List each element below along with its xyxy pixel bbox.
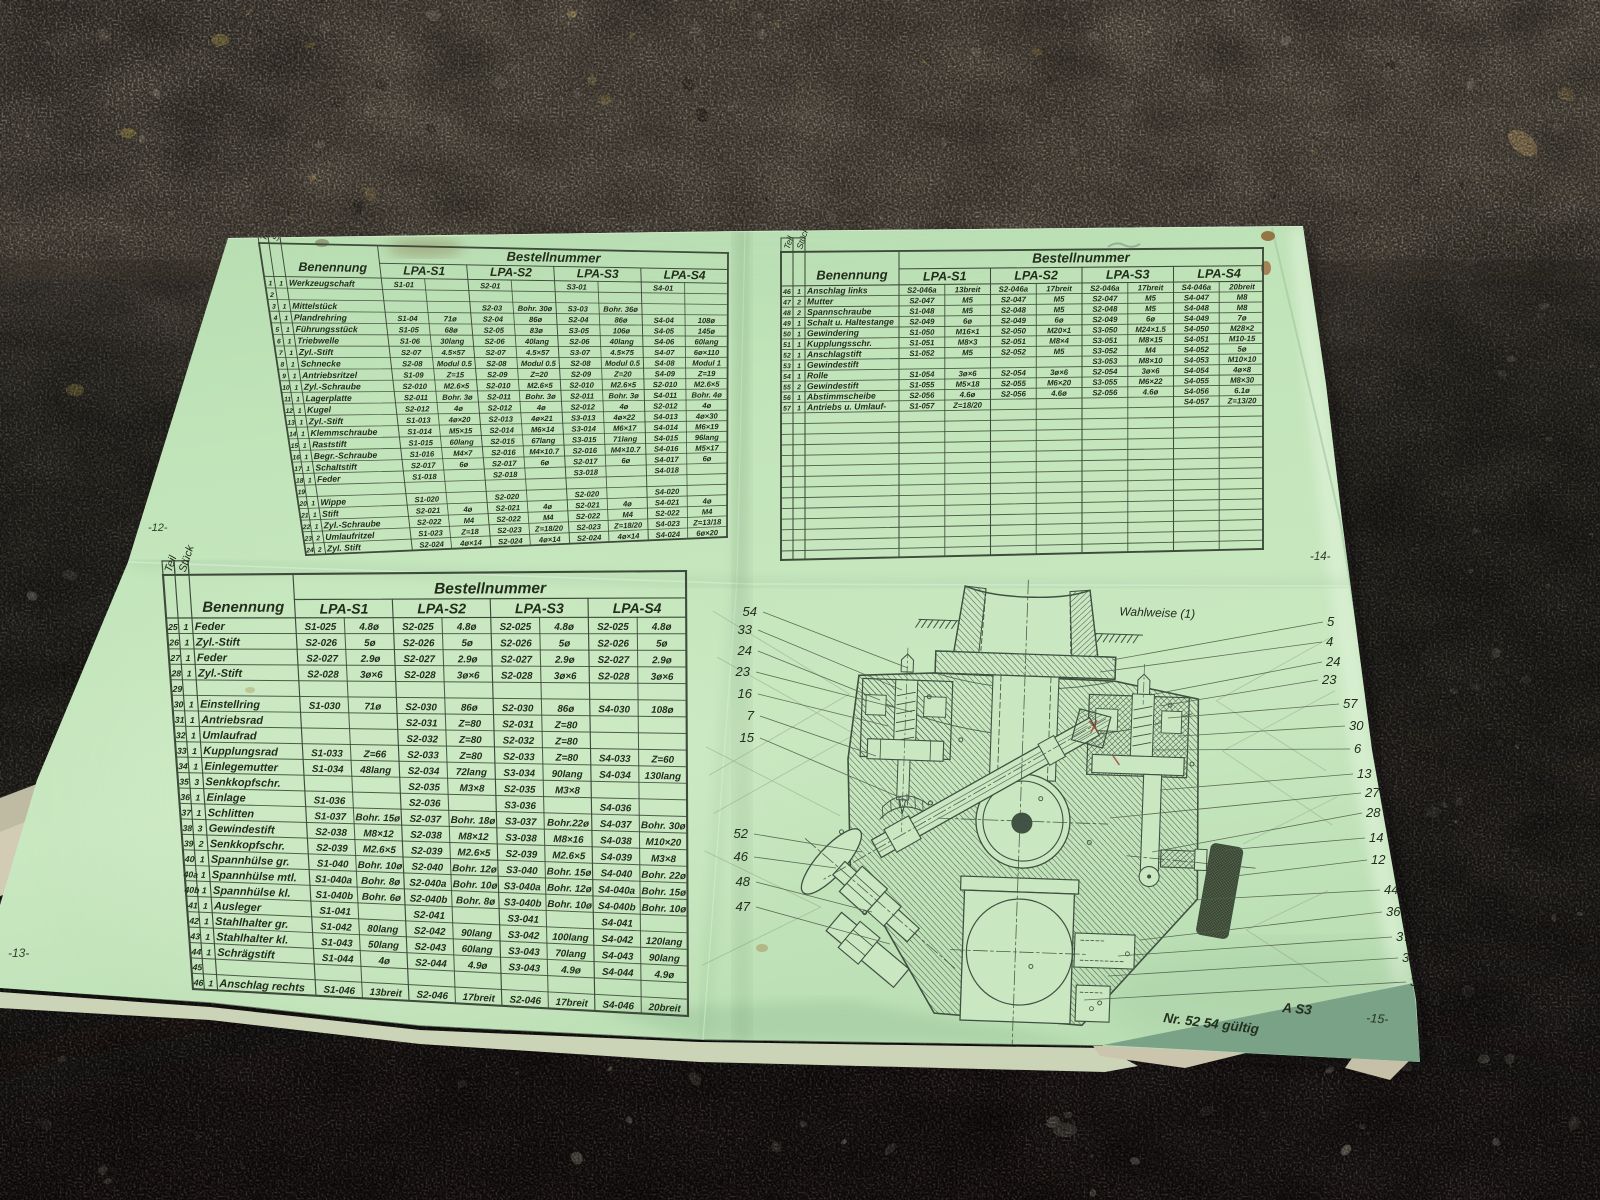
svg-text:27: 27 bbox=[1364, 785, 1380, 800]
svg-text:54: 54 bbox=[743, 604, 757, 619]
svg-text:S4-05: S4-05 bbox=[654, 327, 675, 336]
svg-text:LPA-S1: LPA-S1 bbox=[923, 269, 967, 283]
svg-text:6ø: 6ø bbox=[1146, 314, 1155, 323]
svg-text:1: 1 bbox=[286, 327, 290, 334]
svg-text:S2-046a: S2-046a bbox=[907, 286, 937, 295]
svg-text:3ø×6: 3ø×6 bbox=[1142, 366, 1161, 375]
svg-text:Zyl.-Schraube: Zyl.-Schraube bbox=[323, 518, 381, 530]
svg-text:1: 1 bbox=[189, 699, 194, 709]
svg-text:54: 54 bbox=[783, 374, 791, 381]
svg-text:M2.6×5: M2.6×5 bbox=[610, 380, 636, 389]
svg-text:40lang: 40lang bbox=[524, 337, 549, 346]
svg-text:M6×17: M6×17 bbox=[613, 423, 637, 432]
svg-text:40a: 40a bbox=[182, 869, 198, 880]
svg-text:S3-042: S3-042 bbox=[507, 930, 540, 942]
svg-text:9: 9 bbox=[282, 373, 286, 380]
svg-text:S4-021: S4-021 bbox=[655, 498, 680, 508]
svg-text:LPA-S4: LPA-S4 bbox=[613, 600, 662, 616]
svg-text:S3-040: S3-040 bbox=[506, 865, 539, 877]
svg-text:6.1ø: 6.1ø bbox=[1234, 386, 1250, 395]
svg-text:S2-035: S2-035 bbox=[408, 782, 440, 794]
svg-text:S2-010: S2-010 bbox=[653, 380, 678, 389]
svg-text:S1-055: S1-055 bbox=[909, 380, 935, 389]
svg-text:4.6ø: 4.6ø bbox=[1050, 389, 1067, 398]
svg-text:S3-01: S3-01 bbox=[566, 282, 586, 291]
svg-text:Mittelstück: Mittelstück bbox=[292, 301, 338, 311]
svg-text:S2-010: S2-010 bbox=[569, 381, 594, 390]
svg-text:100lang: 100lang bbox=[552, 932, 589, 945]
svg-text:S1-09: S1-09 bbox=[403, 371, 424, 380]
svg-text:S4-052: S4-052 bbox=[1184, 345, 1210, 354]
svg-text:Bohr. 8ø: Bohr. 8ø bbox=[361, 876, 401, 888]
svg-text:S2-04: S2-04 bbox=[483, 315, 504, 324]
svg-text:M4: M4 bbox=[463, 516, 475, 525]
svg-text:29: 29 bbox=[172, 684, 183, 694]
svg-text:3ø×6: 3ø×6 bbox=[1050, 368, 1069, 377]
svg-text:S2-026: S2-026 bbox=[403, 638, 435, 649]
svg-text:16: 16 bbox=[292, 454, 300, 461]
svg-text:1: 1 bbox=[797, 363, 801, 370]
svg-text:90lang: 90lang bbox=[649, 952, 681, 964]
svg-text:Klemmschraube: Klemmschraube bbox=[310, 427, 377, 438]
svg-text:43: 43 bbox=[189, 931, 200, 941]
svg-text:Z=80: Z=80 bbox=[458, 735, 482, 746]
svg-text:S4-06: S4-06 bbox=[654, 337, 675, 346]
svg-text:30: 30 bbox=[1349, 718, 1364, 733]
svg-text:S1-052: S1-052 bbox=[909, 349, 935, 358]
svg-text:6ø: 6ø bbox=[1054, 316, 1063, 325]
svg-text:Bohr.22ø: Bohr.22ø bbox=[547, 818, 589, 830]
svg-text:36: 36 bbox=[1386, 904, 1401, 919]
svg-text:S2-015: S2-015 bbox=[490, 437, 515, 446]
svg-text:Modul 1: Modul 1 bbox=[692, 359, 721, 368]
svg-text:S2-024: S2-024 bbox=[577, 533, 603, 543]
svg-text:7ø: 7ø bbox=[1237, 313, 1246, 322]
svg-text:M4: M4 bbox=[1145, 346, 1157, 355]
svg-text:48lang: 48lang bbox=[359, 765, 391, 777]
svg-text:S2-047: S2-047 bbox=[1001, 295, 1027, 304]
svg-text:10: 10 bbox=[282, 385, 290, 392]
svg-text:S3-018: S3-018 bbox=[573, 468, 598, 478]
svg-text:S2-017: S2-017 bbox=[411, 461, 436, 471]
svg-text:S4-046a: S4-046a bbox=[1182, 283, 1212, 292]
svg-text:S4-01: S4-01 bbox=[653, 284, 673, 293]
svg-text:33: 33 bbox=[738, 622, 753, 637]
svg-text:17breit: 17breit bbox=[462, 992, 495, 1005]
svg-text:S1-048: S1-048 bbox=[909, 307, 935, 316]
svg-text:S2-012: S2-012 bbox=[405, 404, 430, 413]
svg-text:48: 48 bbox=[736, 874, 751, 889]
svg-text:145ø: 145ø bbox=[698, 327, 716, 336]
svg-text:1: 1 bbox=[201, 870, 206, 880]
svg-text:1: 1 bbox=[313, 512, 317, 519]
svg-text:1: 1 bbox=[202, 885, 207, 895]
svg-text:S2-033: S2-033 bbox=[503, 752, 535, 764]
svg-text:28: 28 bbox=[1365, 805, 1381, 820]
svg-text:S1-051: S1-051 bbox=[909, 338, 934, 347]
svg-text:Modul 0.5: Modul 0.5 bbox=[437, 359, 473, 368]
svg-text:M5: M5 bbox=[962, 306, 974, 315]
svg-text:1: 1 bbox=[191, 730, 196, 740]
svg-text:S2-011: S2-011 bbox=[487, 392, 511, 401]
svg-text:M2.6×5: M2.6×5 bbox=[694, 380, 720, 389]
svg-text:39: 39 bbox=[184, 838, 194, 848]
svg-text:S2-033: S2-033 bbox=[407, 750, 439, 762]
svg-text:50: 50 bbox=[783, 331, 791, 338]
svg-text:3: 3 bbox=[194, 777, 199, 787]
svg-text:60lang: 60lang bbox=[450, 437, 475, 446]
svg-text:Rolle: Rolle bbox=[807, 370, 828, 380]
svg-text:S2-011: S2-011 bbox=[404, 393, 428, 402]
svg-text:S3-053: S3-053 bbox=[1092, 357, 1118, 366]
svg-text:S4-013: S4-013 bbox=[653, 412, 678, 421]
svg-text:Begr.-Schraube: Begr.-Schraube bbox=[314, 450, 378, 461]
svg-text:5ø: 5ø bbox=[559, 638, 570, 649]
svg-text:S4-050: S4-050 bbox=[1184, 324, 1210, 333]
svg-text:Senkkopfschr.: Senkkopfschr. bbox=[210, 838, 286, 852]
svg-text:Gewindestift: Gewindestift bbox=[209, 823, 277, 837]
svg-text:Gewindestift: Gewindestift bbox=[807, 380, 860, 391]
svg-text:6: 6 bbox=[277, 338, 281, 345]
svg-text:18: 18 bbox=[296, 478, 304, 485]
svg-text:S4-016: S4-016 bbox=[654, 444, 679, 454]
svg-text:S4-037: S4-037 bbox=[600, 819, 632, 831]
svg-text:Kugel: Kugel bbox=[307, 405, 332, 415]
svg-text:6: 6 bbox=[1354, 741, 1362, 756]
svg-text:M8×15: M8×15 bbox=[1138, 335, 1163, 344]
svg-text:Anschlagstift: Anschlagstift bbox=[806, 349, 863, 360]
svg-text:Bestellnummer: Bestellnummer bbox=[506, 249, 601, 266]
svg-text:M4: M4 bbox=[622, 510, 634, 519]
svg-text:15: 15 bbox=[291, 443, 299, 450]
svg-text:1: 1 bbox=[306, 466, 310, 473]
svg-text:Bohr. 3ø: Bohr. 3ø bbox=[442, 393, 473, 402]
svg-text:M8: M8 bbox=[1237, 303, 1249, 312]
svg-text:4ø×22: 4ø×22 bbox=[612, 413, 636, 422]
svg-text:M2.6×5: M2.6×5 bbox=[363, 844, 397, 856]
svg-text:Bohr. 15ø: Bohr. 15ø bbox=[547, 866, 592, 879]
svg-text:M28×2: M28×2 bbox=[1230, 324, 1255, 333]
svg-text:Schlitten: Schlitten bbox=[208, 807, 255, 820]
svg-text:38: 38 bbox=[182, 823, 192, 833]
svg-text:6ø: 6ø bbox=[540, 458, 549, 467]
svg-text:S4-011: S4-011 bbox=[653, 391, 677, 400]
svg-text:Z=80: Z=80 bbox=[457, 719, 481, 730]
svg-text:S2-021: S2-021 bbox=[416, 506, 441, 516]
svg-text:106ø: 106ø bbox=[613, 326, 631, 335]
svg-text:1: 1 bbox=[797, 374, 801, 381]
svg-text:S4-047: S4-047 bbox=[1184, 293, 1210, 302]
svg-text:Zyl.-Schraube: Zyl.-Schraube bbox=[303, 381, 361, 391]
svg-text:2: 2 bbox=[315, 535, 320, 542]
svg-text:1: 1 bbox=[279, 281, 283, 288]
svg-text:S2-043: S2-043 bbox=[414, 942, 447, 955]
svg-text:16: 16 bbox=[738, 686, 753, 701]
svg-text:S3-038: S3-038 bbox=[505, 833, 537, 845]
svg-text:3ø×6: 3ø×6 bbox=[554, 671, 577, 682]
svg-text:Z=80: Z=80 bbox=[554, 720, 578, 731]
svg-text:4ø×14: 4ø×14 bbox=[616, 531, 640, 541]
svg-text:LPA-S2: LPA-S2 bbox=[490, 265, 532, 280]
svg-text:4ø×14: 4ø×14 bbox=[459, 538, 483, 548]
svg-text:S2-08: S2-08 bbox=[402, 359, 423, 368]
svg-text:Z=20: Z=20 bbox=[529, 370, 548, 379]
svg-text:Z=80: Z=80 bbox=[458, 751, 482, 762]
svg-text:S2-018: S2-018 bbox=[493, 470, 518, 480]
svg-text:M16×1: M16×1 bbox=[955, 327, 979, 336]
svg-text:67lang: 67lang bbox=[531, 436, 556, 445]
svg-text:33: 33 bbox=[177, 746, 187, 756]
svg-text:S2-044: S2-044 bbox=[415, 958, 448, 971]
svg-text:1: 1 bbox=[797, 321, 801, 328]
svg-text:13breit: 13breit bbox=[955, 285, 981, 294]
svg-text:S2-017: S2-017 bbox=[573, 457, 598, 467]
svg-text:32: 32 bbox=[176, 730, 186, 740]
svg-text:Schnecke: Schnecke bbox=[301, 359, 341, 369]
svg-text:20breit: 20breit bbox=[1228, 282, 1255, 291]
svg-text:1: 1 bbox=[289, 350, 293, 357]
svg-text:Feder: Feder bbox=[317, 474, 341, 485]
svg-text:1: 1 bbox=[208, 978, 214, 988]
svg-text:S2-022: S2-022 bbox=[496, 514, 522, 524]
svg-text:S2-055: S2-055 bbox=[1001, 379, 1027, 388]
svg-text:7: 7 bbox=[279, 350, 283, 357]
svg-text:S1-016: S1-016 bbox=[410, 449, 435, 459]
svg-text:S2-034: S2-034 bbox=[408, 766, 440, 778]
svg-text:17breit: 17breit bbox=[1046, 284, 1072, 293]
svg-text:Bohr. 10ø: Bohr. 10ø bbox=[547, 899, 592, 912]
svg-text:S2-039: S2-039 bbox=[316, 843, 348, 855]
svg-text:S2-01: S2-01 bbox=[480, 281, 500, 290]
svg-text:1: 1 bbox=[311, 500, 315, 507]
svg-text:M2.6×5: M2.6×5 bbox=[552, 850, 586, 862]
svg-text:4.6ø: 4.6ø bbox=[1142, 387, 1159, 396]
svg-text:S2-056: S2-056 bbox=[1092, 388, 1118, 397]
svg-text:-14-: -14- bbox=[1310, 551, 1331, 563]
svg-text:S2-047: S2-047 bbox=[909, 296, 935, 305]
svg-text:Einstellring: Einstellring bbox=[200, 699, 260, 712]
svg-text:27: 27 bbox=[169, 653, 181, 663]
svg-text:-13-: -13- bbox=[8, 946, 29, 960]
svg-text:40lang: 40lang bbox=[609, 337, 634, 346]
svg-text:Bohr. 22ø: Bohr. 22ø bbox=[641, 870, 686, 883]
svg-text:S3-03: S3-03 bbox=[568, 304, 589, 313]
svg-text:70lang: 70lang bbox=[555, 948, 587, 960]
svg-text:S1-05: S1-05 bbox=[399, 325, 420, 334]
svg-text:Z=13/18: Z=13/18 bbox=[692, 517, 722, 527]
svg-text:Z=80: Z=80 bbox=[554, 736, 578, 747]
svg-text:A S3: A S3 bbox=[1281, 1000, 1313, 1018]
svg-text:S3-015: S3-015 bbox=[572, 435, 597, 444]
svg-text:45: 45 bbox=[191, 962, 202, 973]
svg-text:Bestellnummer: Bestellnummer bbox=[1032, 250, 1130, 266]
svg-text:1: 1 bbox=[299, 419, 303, 426]
svg-text:Schalt u. Haltestange: Schalt u. Haltestange bbox=[807, 317, 894, 328]
svg-text:S2-08: S2-08 bbox=[486, 359, 507, 368]
svg-text:S4-053: S4-053 bbox=[1184, 355, 1210, 364]
svg-text:52: 52 bbox=[783, 353, 791, 360]
svg-text:17breit: 17breit bbox=[555, 997, 588, 1010]
svg-text:Bohr. 10ø: Bohr. 10ø bbox=[453, 879, 498, 892]
svg-text:S2-012: S2-012 bbox=[488, 403, 513, 412]
svg-text:86ø: 86ø bbox=[461, 703, 478, 714]
svg-text:30lang: 30lang bbox=[440, 337, 464, 346]
svg-text:24: 24 bbox=[737, 643, 752, 658]
svg-text:S2-06: S2-06 bbox=[484, 337, 505, 346]
svg-text:6ø×110: 6ø×110 bbox=[694, 348, 720, 357]
svg-text:2: 2 bbox=[269, 292, 274, 299]
svg-text:M20×1: M20×1 bbox=[1047, 326, 1071, 335]
svg-text:40b: 40b bbox=[183, 885, 200, 896]
svg-text:71ø: 71ø bbox=[364, 701, 381, 712]
svg-text:4.5×75: 4.5×75 bbox=[609, 348, 634, 357]
svg-text:Antriebsrad: Antriebsrad bbox=[200, 714, 263, 727]
svg-text:1: 1 bbox=[268, 280, 272, 287]
svg-text:S2-046: S2-046 bbox=[509, 994, 542, 1007]
svg-text:4ø×30: 4ø×30 bbox=[695, 412, 719, 421]
svg-text:Führungsstück: Führungsstück bbox=[296, 324, 359, 334]
svg-text:Abstimmscheibe: Abstimmscheibe bbox=[806, 391, 876, 402]
svg-text:S2-030: S2-030 bbox=[405, 702, 437, 713]
svg-text:96lang: 96lang bbox=[695, 433, 720, 442]
svg-text:S2-042: S2-042 bbox=[414, 926, 447, 938]
svg-text:6ø: 6ø bbox=[621, 456, 630, 465]
svg-text:S2-037: S2-037 bbox=[409, 814, 441, 826]
svg-text:Anschlag links: Anschlag links bbox=[806, 285, 868, 296]
svg-text:M5×15: M5×15 bbox=[449, 426, 473, 435]
svg-text:M5: M5 bbox=[1145, 294, 1157, 303]
svg-text:Schaltstift: Schaltstift bbox=[315, 462, 358, 473]
svg-text:M8×3: M8×3 bbox=[958, 338, 978, 347]
svg-text:S1-040b: S1-040b bbox=[315, 890, 353, 902]
svg-text:1: 1 bbox=[293, 373, 297, 380]
svg-text:2: 2 bbox=[796, 384, 801, 391]
svg-text:1: 1 bbox=[204, 916, 209, 926]
svg-text:3: 3 bbox=[197, 823, 202, 833]
svg-text:M5: M5 bbox=[1054, 305, 1066, 314]
svg-text:3: 3 bbox=[272, 304, 276, 311]
svg-text:S2-040b: S2-040b bbox=[410, 894, 448, 906]
svg-text:4.9ø: 4.9ø bbox=[653, 969, 674, 981]
svg-text:S4-030: S4-030 bbox=[598, 704, 630, 715]
svg-text:S4-034: S4-034 bbox=[599, 770, 631, 782]
svg-text:S2-048: S2-048 bbox=[1001, 306, 1027, 315]
svg-text:71ø: 71ø bbox=[444, 314, 458, 323]
svg-text:S3-055: S3-055 bbox=[1092, 378, 1118, 387]
svg-text:S4-039: S4-039 bbox=[600, 852, 632, 864]
svg-text:M8×4: M8×4 bbox=[1049, 336, 1069, 345]
svg-text:Umlaufritzel: Umlaufritzel bbox=[325, 530, 375, 542]
svg-text:S4-09: S4-09 bbox=[655, 369, 676, 378]
svg-text:S2-027: S2-027 bbox=[598, 655, 630, 666]
svg-text:3ø×6: 3ø×6 bbox=[959, 369, 978, 378]
svg-text:11: 11 bbox=[284, 396, 291, 403]
svg-text:20breit: 20breit bbox=[647, 1002, 681, 1015]
svg-text:Lagerplatte: Lagerplatte bbox=[305, 393, 352, 403]
svg-text:57: 57 bbox=[1343, 696, 1358, 711]
svg-text:S2-056: S2-056 bbox=[909, 391, 935, 400]
svg-text:Antriebs u. Umlauf-: Antriebs u. Umlauf- bbox=[806, 401, 887, 412]
svg-text:S2-039: S2-039 bbox=[505, 849, 537, 861]
svg-text:1: 1 bbox=[200, 854, 205, 864]
svg-text:6ø: 6ø bbox=[963, 317, 972, 326]
svg-text:2: 2 bbox=[317, 547, 322, 554]
svg-text:S4-018: S4-018 bbox=[654, 466, 679, 476]
svg-text:S2-026: S2-026 bbox=[500, 638, 532, 649]
svg-text:S3-052: S3-052 bbox=[1092, 346, 1118, 355]
svg-text:M6×19: M6×19 bbox=[695, 422, 719, 431]
svg-text:4ø: 4ø bbox=[453, 404, 463, 413]
svg-text:13: 13 bbox=[287, 420, 295, 427]
svg-text:Spannschraube: Spannschraube bbox=[807, 306, 872, 317]
svg-text:20: 20 bbox=[298, 501, 307, 508]
svg-text:22: 22 bbox=[302, 524, 311, 531]
svg-text:15: 15 bbox=[740, 730, 755, 745]
svg-text:M5×18: M5×18 bbox=[955, 380, 980, 389]
svg-text:8: 8 bbox=[281, 362, 285, 369]
svg-text:S4-044: S4-044 bbox=[602, 967, 635, 980]
svg-text:S3-014: S3-014 bbox=[571, 424, 596, 433]
svg-text:S2-023: S2-023 bbox=[497, 525, 523, 535]
svg-text:Z=18/20: Z=18/20 bbox=[534, 524, 564, 534]
svg-text:3ø×6: 3ø×6 bbox=[457, 670, 480, 681]
svg-text:Bohr. 3ø: Bohr. 3ø bbox=[608, 391, 639, 400]
svg-text:S3-050: S3-050 bbox=[1092, 325, 1118, 334]
svg-text:4ø: 4ø bbox=[701, 401, 711, 410]
svg-text:S1-040a: S1-040a bbox=[315, 874, 353, 886]
svg-text:S2-056: S2-056 bbox=[1001, 389, 1027, 398]
svg-text:S4-055: S4-055 bbox=[1184, 376, 1210, 385]
svg-text:1: 1 bbox=[288, 338, 292, 345]
svg-text:Z=19: Z=19 bbox=[697, 369, 716, 378]
svg-text:S2-031: S2-031 bbox=[406, 718, 438, 729]
svg-text:1: 1 bbox=[797, 352, 801, 359]
svg-text:23: 23 bbox=[1321, 672, 1337, 687]
svg-text:M8×30: M8×30 bbox=[1230, 376, 1255, 385]
svg-text:M4: M4 bbox=[543, 513, 555, 522]
svg-text:5: 5 bbox=[1327, 614, 1335, 629]
svg-text:S2-027: S2-027 bbox=[306, 654, 338, 665]
svg-text:80lang: 80lang bbox=[367, 924, 399, 936]
svg-text:Benennung: Benennung bbox=[202, 600, 284, 616]
svg-text:Umlaufrad: Umlaufrad bbox=[202, 730, 257, 743]
svg-text:S3-051: S3-051 bbox=[1092, 336, 1117, 345]
svg-text:Kupplungsrad: Kupplungsrad bbox=[203, 745, 278, 758]
svg-text:S1-01: S1-01 bbox=[394, 280, 414, 289]
svg-text:S4-04: S4-04 bbox=[654, 316, 675, 325]
svg-text:LPA-S4: LPA-S4 bbox=[1197, 266, 1241, 280]
svg-text:1: 1 bbox=[195, 792, 200, 802]
svg-text:5ø: 5ø bbox=[364, 638, 375, 649]
svg-text:23: 23 bbox=[303, 536, 312, 543]
svg-text:S2-038: S2-038 bbox=[315, 827, 347, 839]
svg-text:6ø×20: 6ø×20 bbox=[696, 528, 719, 538]
svg-text:S2-038: S2-038 bbox=[410, 830, 442, 842]
svg-text:1: 1 bbox=[192, 746, 197, 756]
svg-text:37: 37 bbox=[181, 807, 192, 817]
svg-text:S1-054: S1-054 bbox=[909, 370, 935, 379]
svg-text:S2-08: S2-08 bbox=[570, 359, 591, 368]
svg-text:36: 36 bbox=[180, 792, 190, 802]
svg-text:Feder: Feder bbox=[197, 652, 228, 664]
svg-text:M2.6×5: M2.6×5 bbox=[527, 381, 553, 390]
svg-text:4ø×21: 4ø×21 bbox=[530, 414, 553, 423]
svg-text:S2-028: S2-028 bbox=[501, 671, 533, 682]
svg-text:1: 1 bbox=[205, 932, 210, 942]
svg-text:S1-042: S1-042 bbox=[320, 921, 353, 933]
svg-text:Bohr. 8ø: Bohr. 8ø bbox=[456, 895, 496, 908]
svg-text:120lang: 120lang bbox=[646, 936, 683, 949]
